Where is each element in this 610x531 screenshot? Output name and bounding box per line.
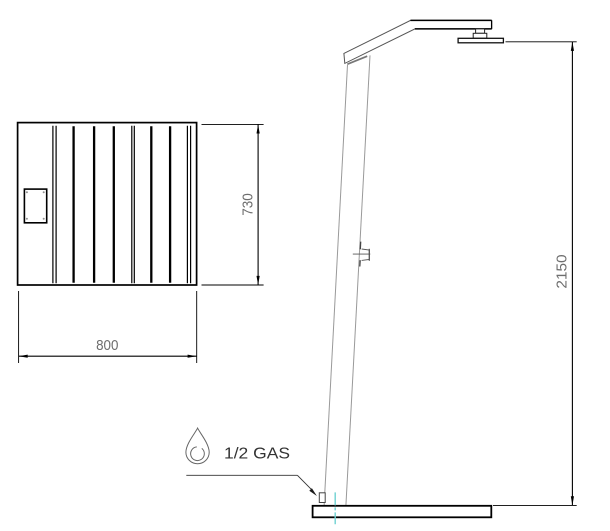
svg-text:1/2 GAS: 1/2 GAS [224,445,290,462]
svg-text:730: 730 [240,193,257,216]
svg-text:800: 800 [96,337,118,354]
svg-text:2150: 2150 [554,254,571,288]
